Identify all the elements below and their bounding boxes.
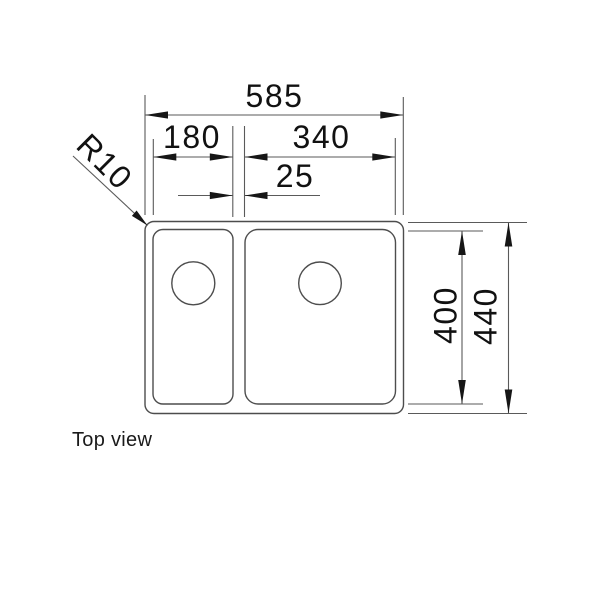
arrowhead-icon (210, 192, 233, 199)
arrowhead-icon (245, 153, 268, 160)
arrowhead-icon (380, 111, 403, 118)
sink-top-view-drawing: 585 180 340 25 R10 400 440 Top view (0, 0, 600, 600)
right-drain-hole (299, 262, 342, 305)
dim-label-divider-gap: 25 (276, 158, 315, 194)
drawing-canvas: 585 180 340 25 R10 400 440 Top view (0, 0, 600, 600)
arrowhead-icon (145, 111, 168, 118)
arrowhead-icon (245, 192, 268, 199)
left-drain-hole (172, 262, 215, 305)
arrowhead-icon (505, 390, 513, 414)
dim-label-right-bowl-width: 340 (293, 119, 351, 155)
arrowhead-icon (505, 223, 513, 247)
sink-outer-rim (145, 222, 404, 414)
dim-label-overall-width: 585 (246, 78, 304, 114)
dimension-labels: 585 180 340 25 R10 400 440 (70, 78, 504, 345)
sink-outline (145, 222, 404, 414)
dim-label-left-bowl-width: 180 (163, 119, 221, 155)
dim-label-overall-depth: 440 (468, 287, 504, 345)
dim-label-bowl-depth: 400 (428, 286, 464, 344)
dim-label-corner-radius: R10 (70, 127, 140, 197)
left-bowl (153, 230, 233, 405)
caption-top-view: Top view (72, 429, 152, 451)
arrowhead-icon (372, 153, 395, 160)
arrowhead-icon (458, 231, 466, 255)
right-bowl (245, 230, 396, 405)
arrowhead-icon (458, 380, 466, 404)
